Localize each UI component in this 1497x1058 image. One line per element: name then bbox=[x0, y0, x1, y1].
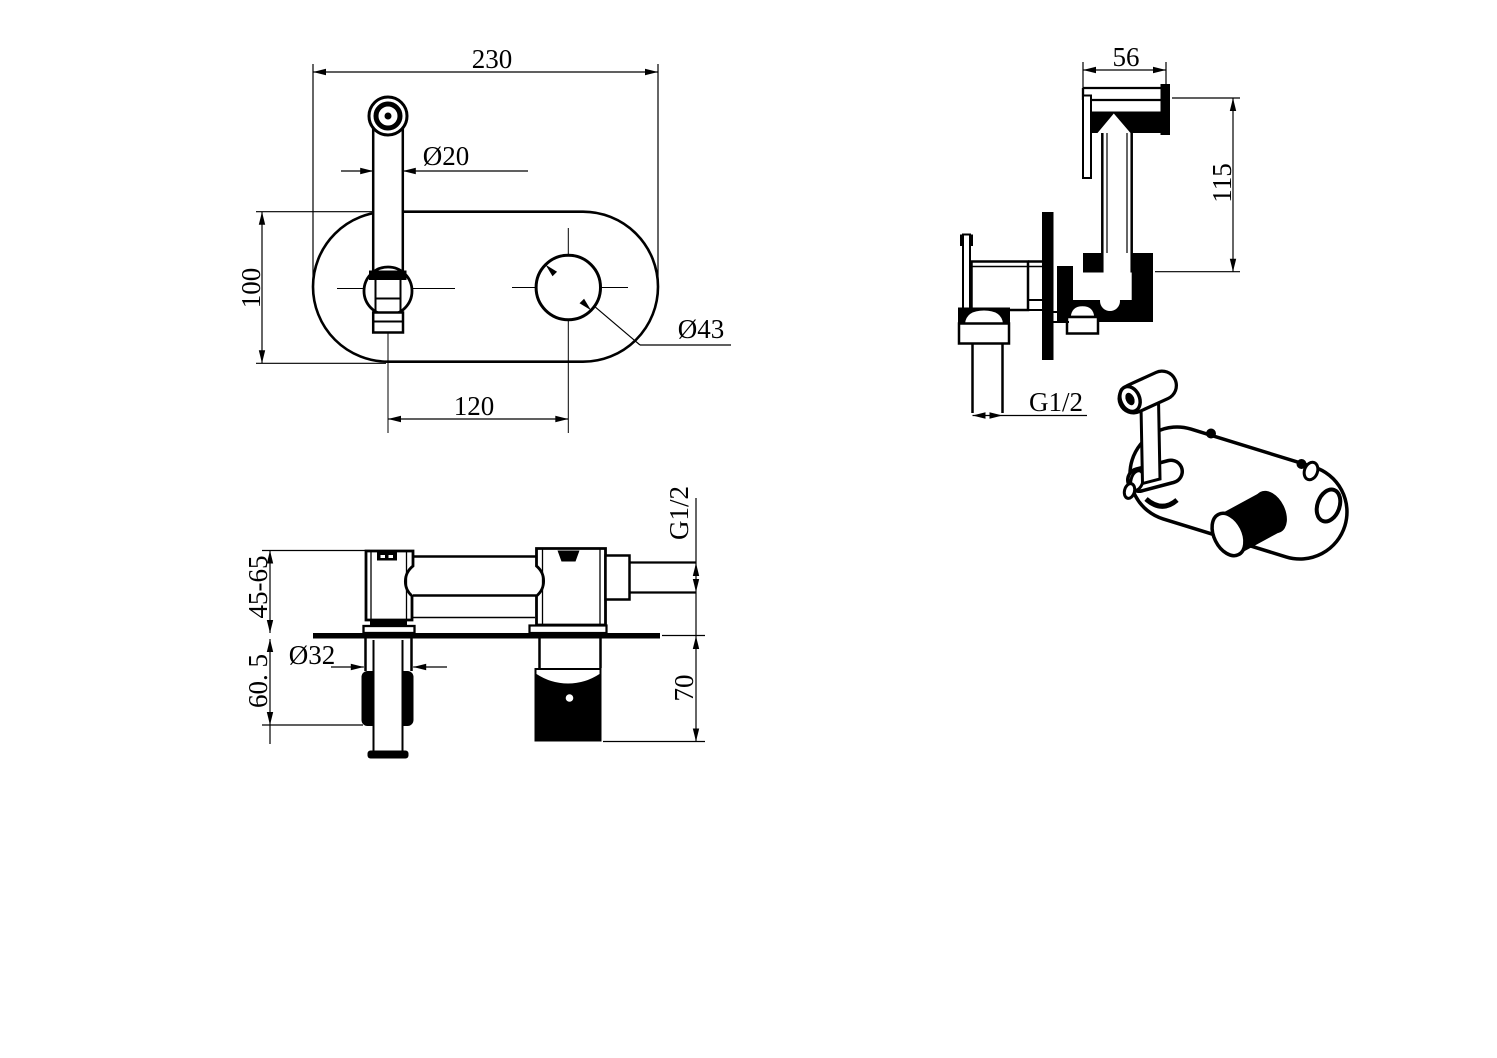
dim-front-width: 230 bbox=[472, 44, 513, 74]
iso-sprayer-handle bbox=[1141, 400, 1160, 484]
dim-section-spout-depth: 70 bbox=[669, 675, 699, 702]
front-view bbox=[256, 64, 731, 433]
head-cone bbox=[1091, 112, 1161, 134]
cover-plate-edge bbox=[1042, 212, 1054, 360]
iso-screw-nub bbox=[1206, 429, 1216, 439]
side-view bbox=[958, 62, 1240, 416]
section-view bbox=[262, 498, 705, 759]
dim-section-embed-depth: 45-65 bbox=[243, 556, 273, 619]
dim-side-head-width: 56 bbox=[1113, 42, 1140, 72]
dim-section-sleeve-diameter: Ø32 bbox=[289, 640, 336, 670]
dim-front-plate-height: 100 bbox=[236, 268, 266, 309]
dim-side-inlet-thread: G1/2 bbox=[1029, 387, 1083, 417]
drawing-canvas: 230 Ø20 100 120 Ø43 56 115 G1/2 45-65 60… bbox=[0, 0, 1497, 1058]
dim-front-spout-diameter: Ø20 bbox=[423, 141, 470, 171]
nozzle-cap bbox=[1161, 84, 1171, 135]
dim-section-handle-depth: 60. 5 bbox=[243, 654, 273, 708]
wall-plate-edge bbox=[313, 633, 660, 639]
isometric-view bbox=[1116, 383, 1347, 561]
valve-body bbox=[972, 262, 1029, 311]
dim-front-hole-spacing: 120 bbox=[454, 391, 495, 421]
dim-side-height: 115 bbox=[1207, 163, 1237, 203]
technical-drawing: 230 Ø20 100 120 Ø43 56 115 G1/2 45-65 60… bbox=[0, 0, 1497, 1058]
dim-front-hole-diameter: Ø43 bbox=[678, 314, 725, 344]
spout-tube bbox=[373, 128, 403, 271]
trigger-plate bbox=[1083, 96, 1091, 179]
dim-section-outlet-thread: G1/2 bbox=[664, 486, 694, 540]
